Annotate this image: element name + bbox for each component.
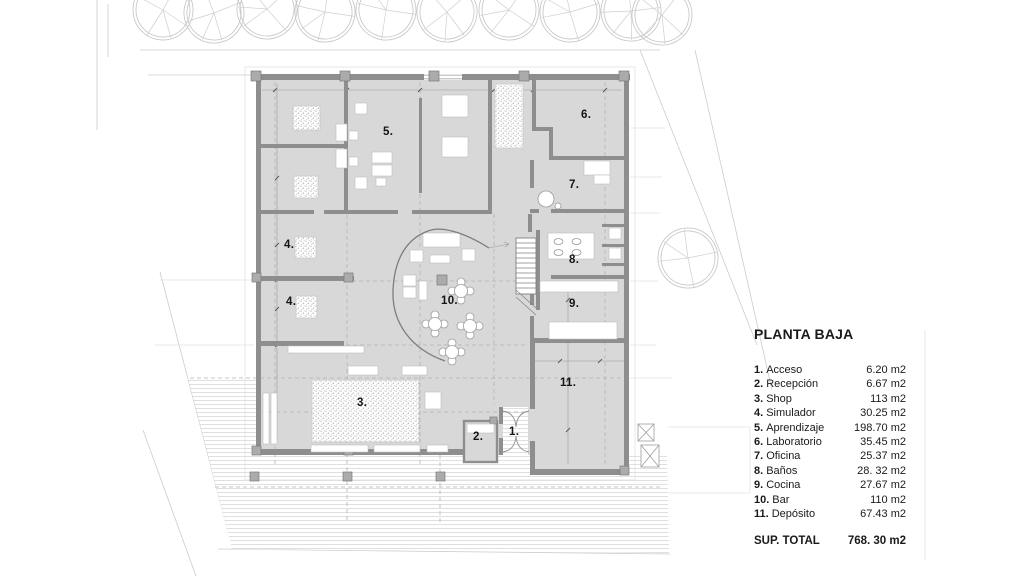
legend-row: 11.Depósito 67.43 m2: [754, 507, 906, 521]
legend-row: 4.Simulador 30.25 m2: [754, 406, 906, 420]
legend-panel: PLANTA BAJA 1.Acceso 6.20 m2 2.Recepción…: [754, 326, 906, 549]
tree-icon: [409, 0, 486, 50]
legend-row: 6.Laboratorio 35.45 m2: [754, 435, 906, 449]
simulator-pad: [294, 176, 318, 198]
legend-row: 3.Shop 113 m2: [754, 392, 906, 406]
room-label-banos: 8.: [569, 254, 579, 266]
legend-row: 9.Cocina 27.67 m2: [754, 478, 906, 492]
tree-icon: [348, 0, 425, 48]
room-label-shop: 3.: [357, 397, 367, 409]
room-label-simulador-1: 4.: [284, 239, 294, 251]
tree-icon: [646, 216, 731, 301]
tree-icon: [476, 0, 541, 43]
room-label-bar: 10.: [441, 295, 458, 307]
simulator-pad: [295, 237, 316, 258]
room-label-cocina: 9.: [569, 298, 579, 310]
simulator-pad: [293, 106, 320, 130]
tree-icon: [627, 0, 697, 50]
room-label-deposito: 11.: [560, 377, 576, 389]
tree-icon: [133, 0, 193, 40]
legend-row: 5.Aprendizaje 198.70 m2: [754, 421, 906, 435]
legend-total-row: SUP. TOTAL 768. 30 m2: [754, 534, 906, 548]
legend-row: 8.Baños 28. 32 m2: [754, 464, 906, 478]
total-value: 768. 30 m2: [848, 534, 906, 548]
column-markers: [638, 424, 659, 467]
room-label-aprendizaje: 5.: [383, 126, 393, 138]
textured-wall-panel: [495, 84, 523, 148]
tree-row-top: [133, 0, 697, 55]
room-label-laboratorio: 6.: [581, 109, 591, 121]
floor-plan-sheet: 5. 4. 4. 3. 10. 2. 1. 6. 7. 8. 9. 11. PL…: [0, 0, 1024, 576]
tree-icon: [229, 0, 306, 47]
total-label: SUP. TOTAL: [754, 534, 820, 548]
legend-row: 2.Recepción 6.67 m2: [754, 377, 906, 391]
shop-display-area: [312, 380, 419, 442]
legend-row: 1.Acceso 6.20 m2: [754, 363, 906, 377]
room-label-oficina: 7.: [569, 179, 579, 191]
column: [437, 275, 447, 285]
legend-row: 7.Oficina 25.37 m2: [754, 449, 906, 463]
tree-icon: [287, 0, 364, 50]
room-label-simulador-2: 4.: [286, 296, 296, 308]
legend-row: 10.Bar 110 m2: [754, 493, 906, 507]
room-label-recepcion: 2.: [473, 431, 483, 443]
tree-row-right: [646, 0, 1024, 300]
room-label-acceso: 1.: [509, 426, 519, 438]
simulator-pad: [296, 296, 317, 318]
plan-title: PLANTA BAJA: [754, 326, 906, 342]
tree-icon: [528, 0, 613, 54]
